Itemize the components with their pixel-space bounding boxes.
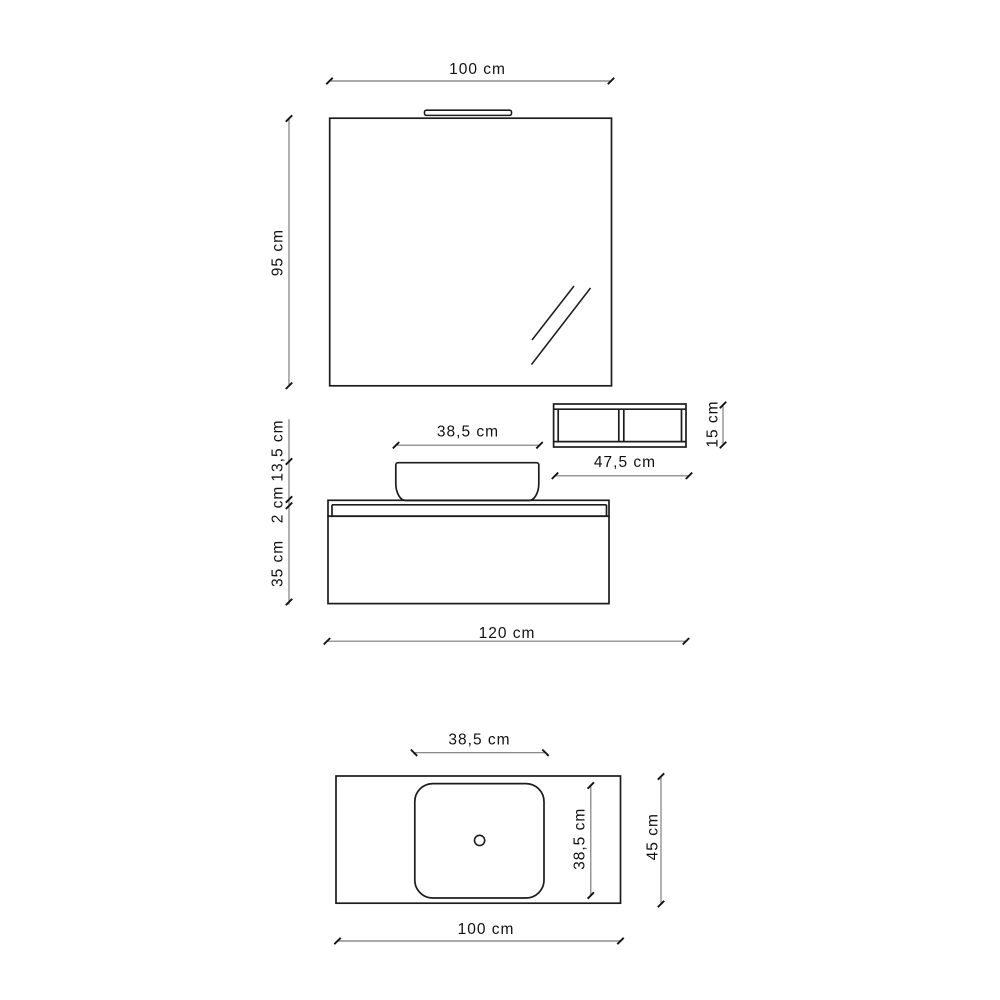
svg-text:38,5 cm: 38,5 cm bbox=[572, 808, 589, 870]
svg-text:120 cm: 120 cm bbox=[479, 625, 536, 642]
svg-text:13,5 cm: 13,5 cm bbox=[269, 419, 286, 481]
svg-text:15 cm: 15 cm bbox=[704, 400, 721, 447]
svg-text:45 cm: 45 cm bbox=[644, 813, 661, 860]
svg-text:38,5 cm: 38,5 cm bbox=[437, 424, 499, 441]
svg-text:35 cm: 35 cm bbox=[269, 540, 286, 587]
svg-text:95 cm: 95 cm bbox=[269, 229, 286, 276]
svg-text:38,5 cm: 38,5 cm bbox=[448, 732, 510, 749]
svg-text:47,5 cm: 47,5 cm bbox=[594, 454, 656, 471]
svg-text:100 cm: 100 cm bbox=[458, 921, 515, 938]
svg-text:100 cm: 100 cm bbox=[449, 61, 506, 78]
svg-text:2 cm: 2 cm bbox=[269, 486, 286, 524]
